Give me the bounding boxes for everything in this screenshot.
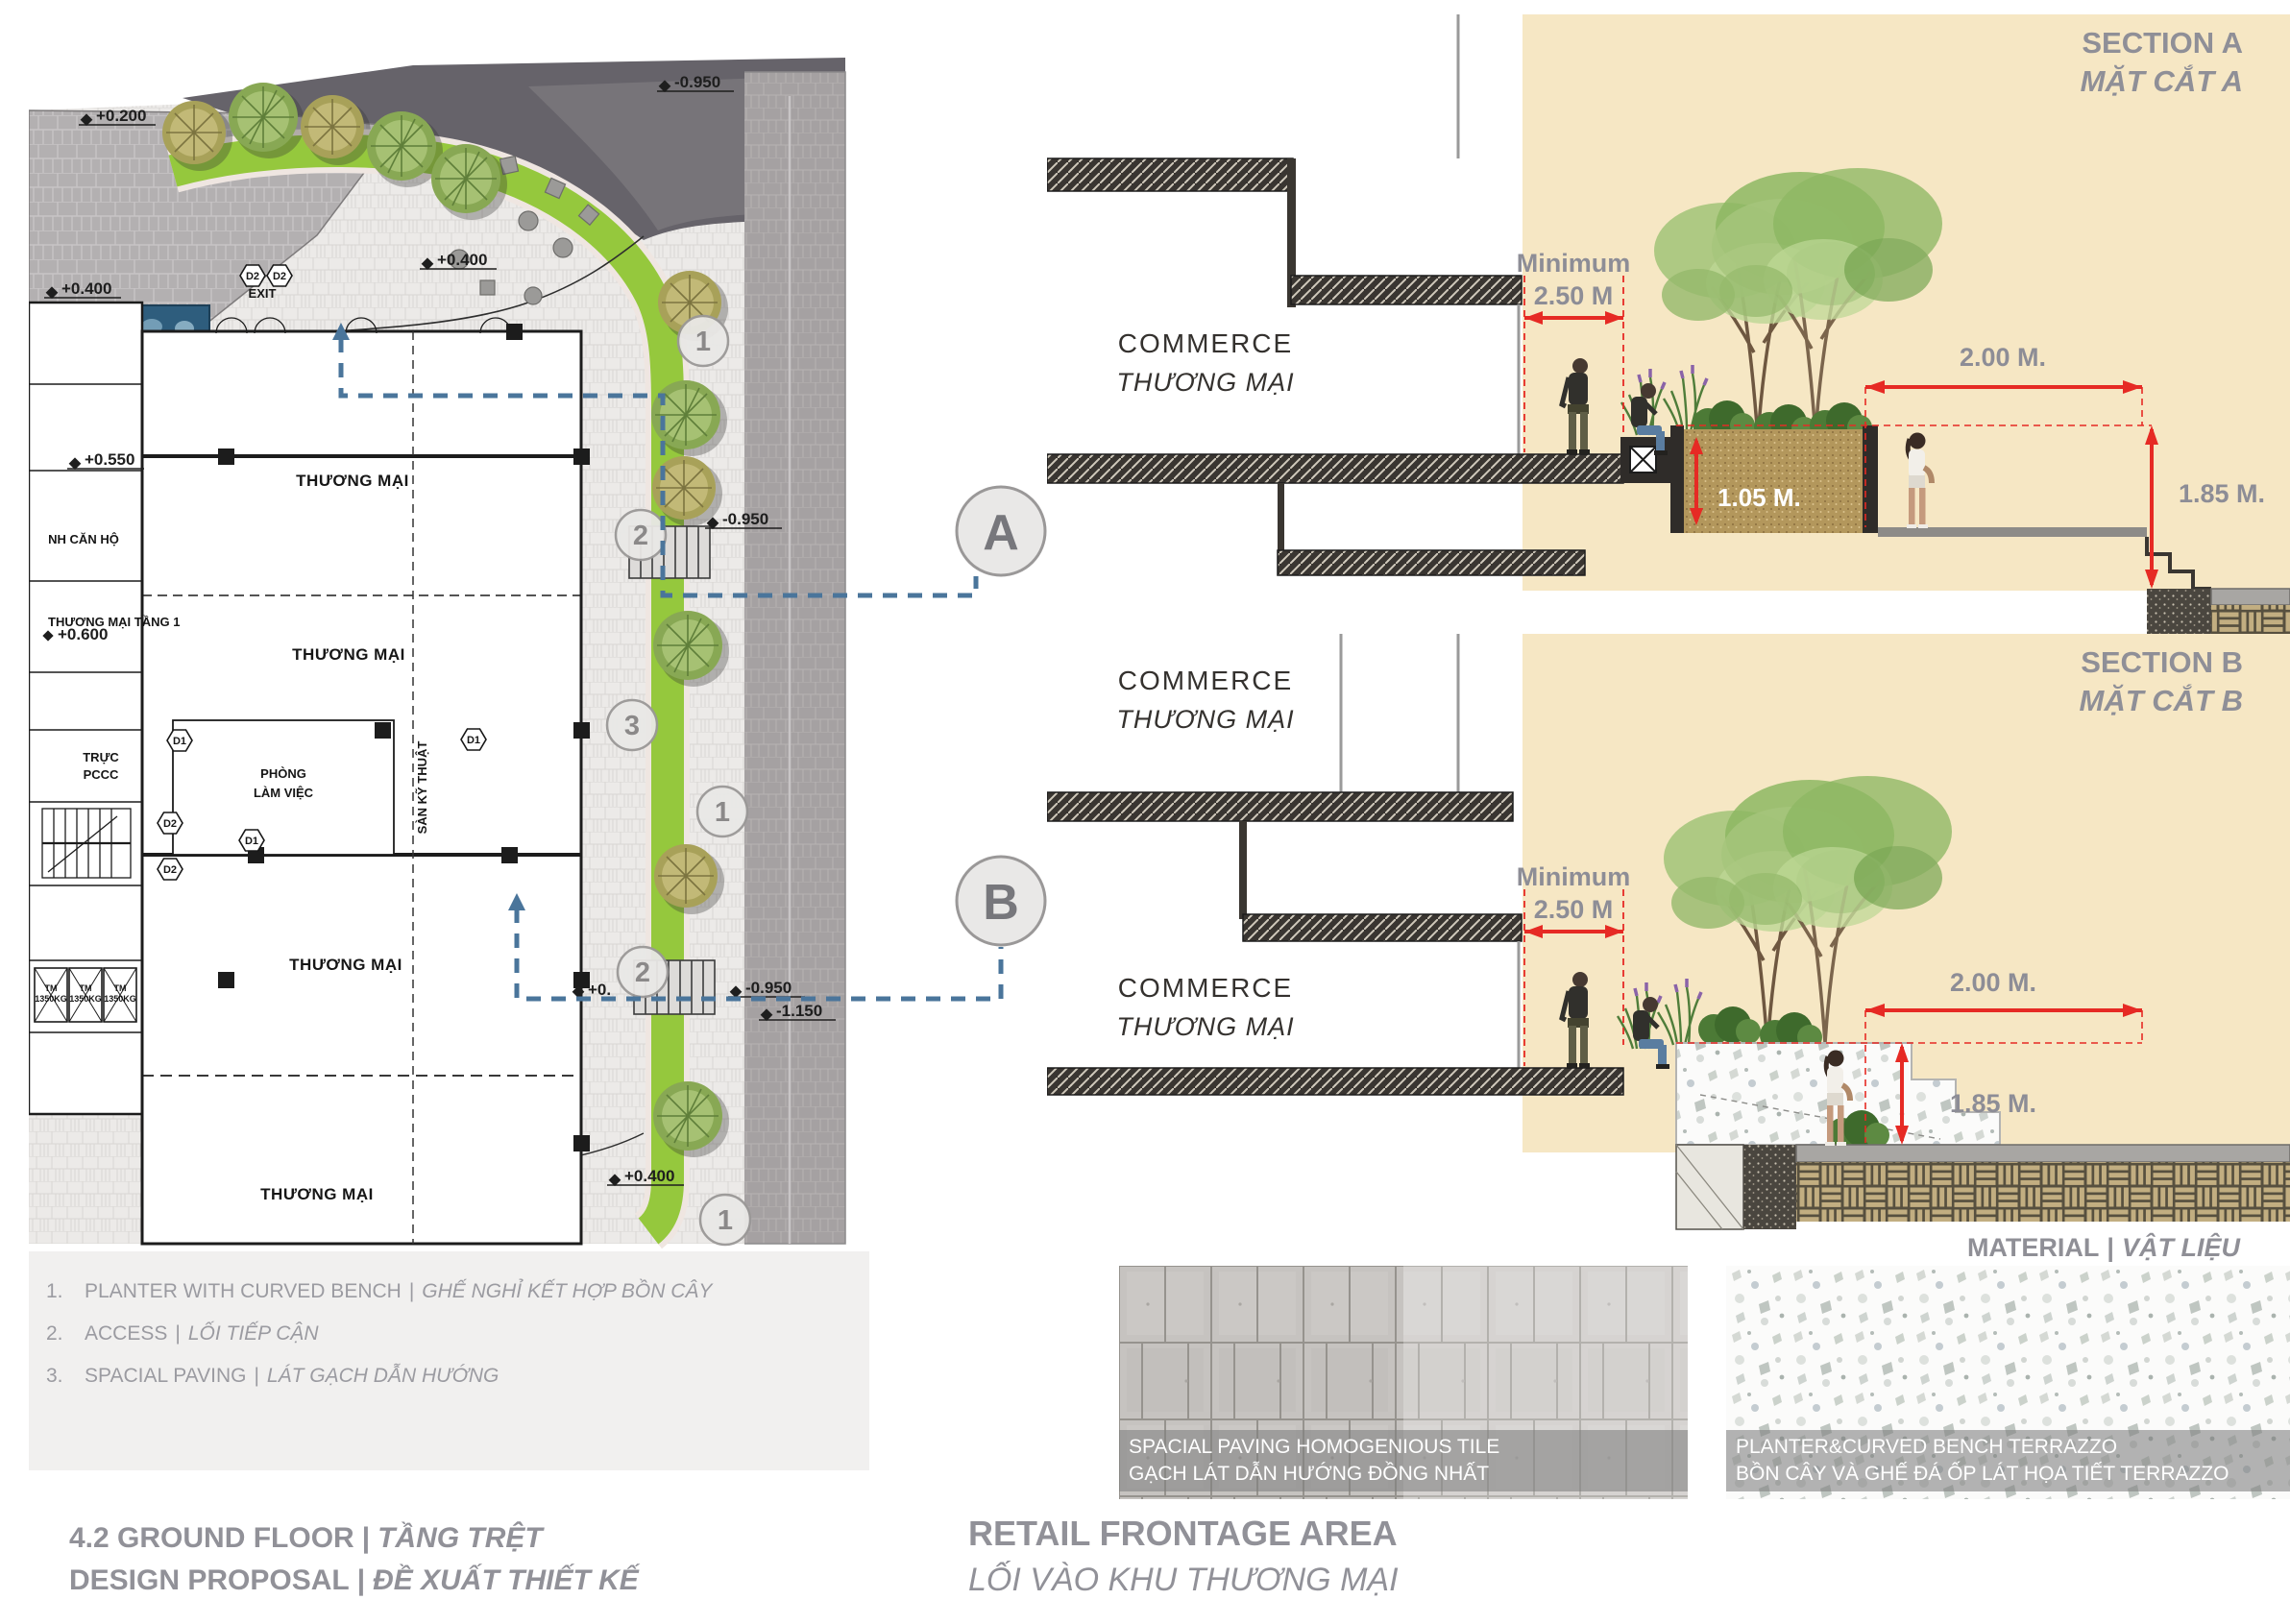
legend-item-en: ACCESS	[85, 1322, 167, 1345]
cut-arrow-b	[508, 893, 525, 910]
material-terrazzo-vi: BỒN CÂY VÀ GHẾ ĐÁ ỐP LÁT HỌA TIẾT TERRAZ…	[1736, 1461, 2280, 1488]
material-terrazzo-en: PLANTER&CURVED BENCH TERRAZZO	[1736, 1434, 2280, 1461]
material-header-vi: VẬT LIỆU	[2122, 1233, 2240, 1262]
sheet-title-line2: DESIGN PROPOSAL|ĐỀ XUẤT THIẾT KẾ	[69, 1560, 639, 1602]
material-caption-terrazzo: PLANTER&CURVED BENCH TERRAZZO BỒN CÂY VÀ…	[1726, 1430, 2290, 1491]
legend-item-number: 3.	[46, 1365, 85, 1388]
legend-item-number: 2.	[46, 1322, 85, 1345]
material-tile-vi: GẠCH LÁT DẪN HƯỚNG ĐỒNG NHẤT	[1129, 1461, 1678, 1488]
material-swatch-tile: SPACIAL PAVING HOMOGENIOUS TILE GẠCH LÁT…	[1119, 1266, 1688, 1499]
sheet-number-title-vi: TẦNG TRỆT	[378, 1522, 543, 1554]
separator: |	[2099, 1233, 2122, 1262]
material-caption-tile: SPACIAL PAVING HOMOGENIOUS TILE GẠCH LÁT…	[1119, 1430, 1688, 1491]
section-badge-a-label: A	[983, 505, 1019, 561]
separator: |	[167, 1322, 187, 1345]
legend-item-vi: GHẾ NGHỈ KẾT HỢP BỒN CÂY	[422, 1280, 712, 1302]
cut-line-a	[341, 338, 976, 595]
legend-item-number: 1.	[46, 1280, 85, 1303]
legend-item-vi: LÁT GẠCH DẪN HƯỚNG	[267, 1365, 499, 1387]
cut-line-b	[517, 909, 1001, 999]
sheet-number-title-en: 4.2 GROUND FLOOR	[69, 1522, 354, 1554]
material-tile-en: SPACIAL PAVING HOMOGENIOUS TILE	[1129, 1434, 1678, 1461]
legend-item-en: SPACIAL PAVING	[85, 1365, 246, 1387]
legend: 1.PLANTER WITH CURVED BENCH|GHẾ NGHỈ KẾT…	[29, 1251, 869, 1470]
separator: |	[354, 1522, 378, 1554]
material-header-en: MATERIAL	[1967, 1233, 2099, 1262]
legend-item-2: 2.ACCESS|LỐI TIẾP CẬN	[46, 1322, 319, 1345]
drawing-title-vi: LỐI VÀO KHU THƯƠNG MẠI	[968, 1562, 1399, 1599]
material-swatch-terrazzo: PLANTER&CURVED BENCH TERRAZZO BỒN CÂY VÀ…	[1726, 1266, 2290, 1499]
sheet-title-line1: 4.2 GROUND FLOOR|TẦNG TRỆT	[69, 1517, 639, 1560]
drawing-sheet: TM 1350KG TM 1350KG TM 1350KG	[0, 0, 2290, 1624]
section-badge-b-label: B	[983, 875, 1019, 931]
separator: |	[350, 1564, 373, 1596]
drawing-title-en: RETAIL FRONTAGE AREA	[968, 1514, 1399, 1554]
material-header: MATERIAL|VẬT LIỆU	[1825, 1233, 2240, 1263]
legend-item-3: 3.SPACIAL PAVING|LÁT GẠCH DẪN HƯỚNG	[46, 1365, 499, 1388]
drawing-title: RETAIL FRONTAGE AREA LỐI VÀO KHU THƯƠNG …	[968, 1514, 1399, 1599]
separator: |	[402, 1280, 422, 1302]
legend-item-en: PLANTER WITH CURVED BENCH	[85, 1280, 402, 1302]
cut-arrow-a	[332, 323, 350, 340]
proposal-title-vi: ĐỀ XUẤT THIẾT KẾ	[373, 1564, 639, 1596]
separator: |	[246, 1365, 266, 1387]
legend-item-1: 1.PLANTER WITH CURVED BENCH|GHẾ NGHỈ KẾT…	[46, 1280, 712, 1303]
sheet-title: 4.2 GROUND FLOOR|TẦNG TRỆT DESIGN PROPOS…	[69, 1517, 639, 1602]
legend-item-vi: LỐI TIẾP CẬN	[188, 1322, 319, 1345]
proposal-title-en: DESIGN PROPOSAL	[69, 1564, 350, 1596]
